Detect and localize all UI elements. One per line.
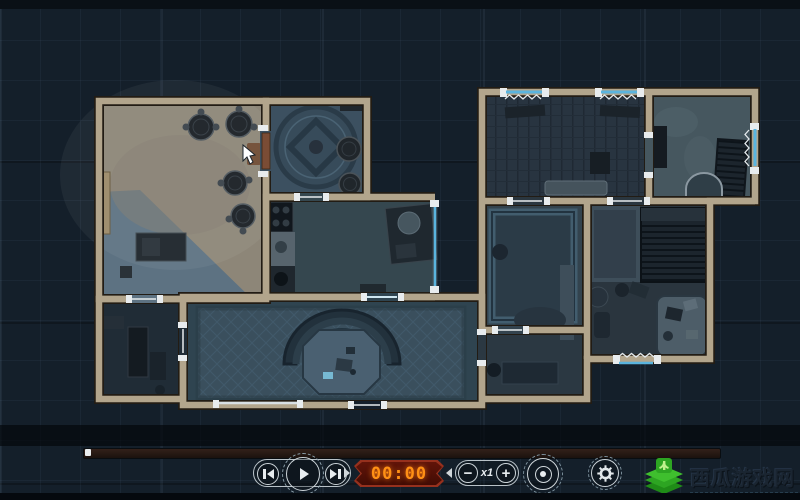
settings-button[interactable] — [591, 459, 619, 487]
arrow-east-icon — [344, 468, 350, 478]
play-button[interactable] — [286, 457, 320, 491]
timeline-track[interactable] — [83, 448, 721, 459]
match-timer: 00:00 — [354, 460, 444, 487]
speed-group: − x1 + — [455, 460, 519, 486]
watermark-title: 西瓜游戏网 — [690, 462, 798, 491]
skip-start-icon — [263, 469, 266, 479]
skip-end-icon — [330, 469, 337, 479]
timeline-playhead[interactable] — [85, 449, 91, 456]
view-toggle-button[interactable] — [527, 458, 559, 490]
grand-hall — [198, 308, 464, 398]
bottom-edge-strip — [0, 493, 800, 500]
speed-increase-button[interactable]: + — [496, 463, 516, 483]
play-icon — [300, 468, 309, 480]
skip-to-start-button[interactable] — [257, 463, 279, 485]
arrow-west-icon — [446, 468, 452, 478]
timeline-band — [0, 425, 800, 446]
eye-icon — [527, 458, 559, 490]
top-edge-strip — [0, 0, 800, 9]
timer-value: 00:00 — [371, 464, 427, 484]
map-canvas[interactable] — [0, 0, 800, 446]
transport-group — [253, 459, 351, 487]
plus-icon: + — [502, 466, 511, 481]
gear-icon — [597, 465, 614, 482]
